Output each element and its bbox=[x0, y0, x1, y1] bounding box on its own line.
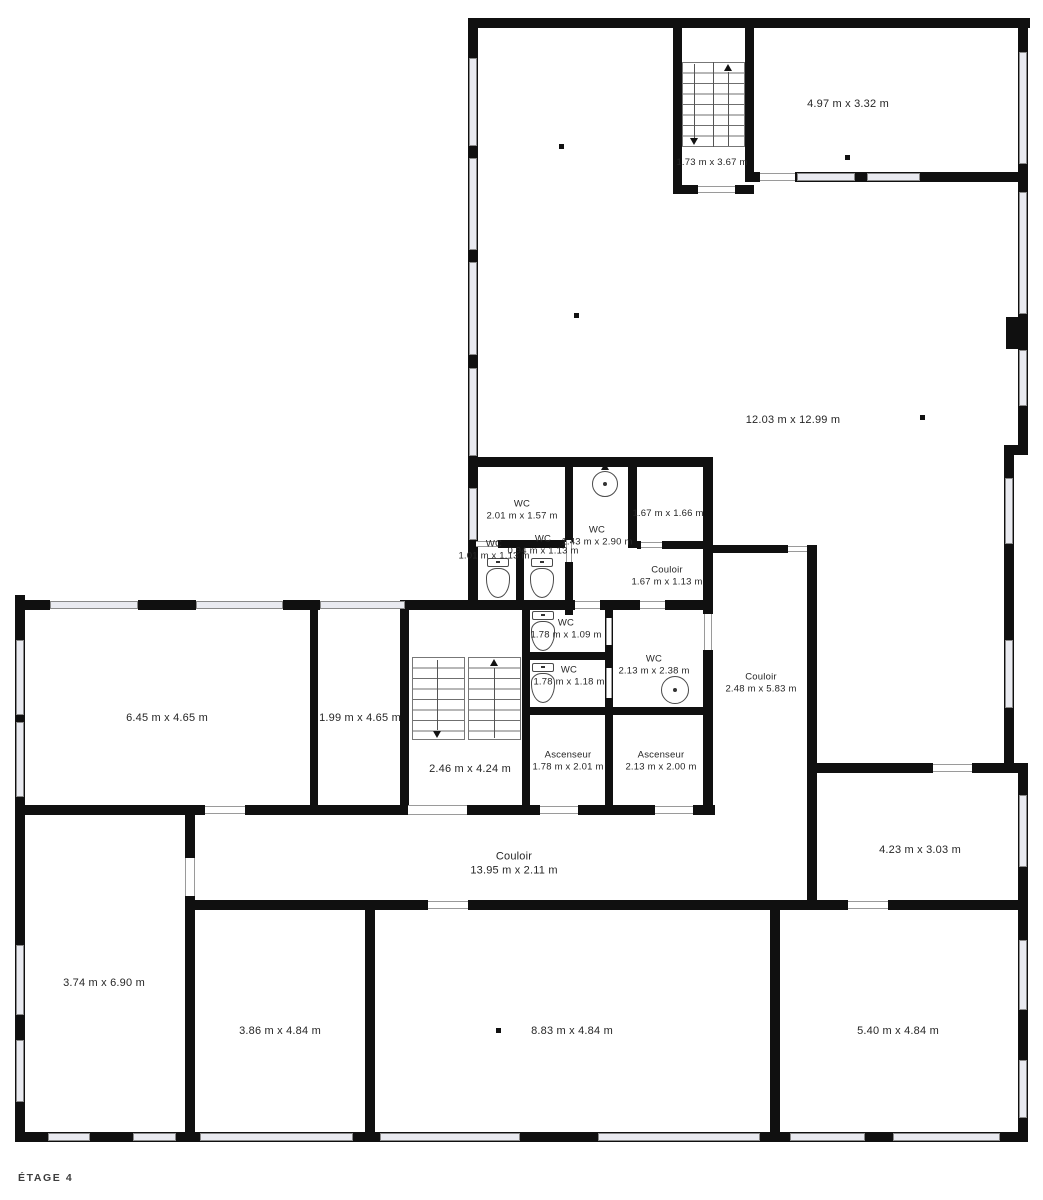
window bbox=[380, 1133, 520, 1141]
wall bbox=[770, 910, 780, 1142]
wall bbox=[703, 650, 713, 813]
wc-1-18: WC1.78 m x 1.18 m bbox=[533, 665, 604, 690]
room-3-86-dimensions: 3.86 m x 4.84 m bbox=[239, 1024, 321, 1038]
window bbox=[16, 640, 24, 715]
wc-2-13: WC2.13 m x 2.38 m bbox=[618, 654, 689, 679]
ascenseur-2-dimensions: 2.13 m x 2.00 m bbox=[625, 762, 696, 774]
room-1-67x1-66-dimensions: 1.67 m x 1.66 m bbox=[632, 508, 703, 520]
toilet-bowl bbox=[486, 568, 510, 598]
marker-dot bbox=[920, 415, 925, 420]
stairs-top: 1.73 m x 3.67 m bbox=[676, 157, 747, 169]
room-4-23-dimensions: 4.23 m x 3.03 m bbox=[879, 843, 961, 857]
toilet-icon bbox=[486, 558, 512, 600]
stairs-middle bbox=[412, 657, 465, 740]
sink-icon bbox=[661, 676, 689, 704]
couloir-1-67: Couloir1.67 m x 1.13 m bbox=[631, 565, 702, 590]
door-opening bbox=[788, 546, 807, 552]
wall bbox=[245, 805, 408, 815]
window bbox=[790, 1133, 865, 1141]
wall bbox=[310, 600, 318, 813]
marker-dot bbox=[496, 1028, 501, 1033]
wall bbox=[468, 900, 848, 910]
wc-2-13-dimensions: 2.13 m x 2.38 m bbox=[618, 666, 689, 678]
window bbox=[1019, 350, 1027, 406]
stairs-run-line bbox=[494, 668, 495, 738]
stairs-mid-dimensions: 2.46 m x 4.24 m bbox=[429, 762, 511, 776]
window bbox=[1005, 478, 1013, 544]
door-opening bbox=[575, 601, 600, 609]
door-opening bbox=[655, 806, 693, 814]
window bbox=[469, 58, 477, 146]
wall bbox=[467, 805, 540, 815]
door-opening bbox=[428, 901, 468, 909]
stairs-run-line bbox=[437, 660, 438, 730]
door-opening bbox=[933, 764, 972, 772]
couloir-2-48: Couloir2.48 m x 5.83 m bbox=[725, 672, 796, 697]
window bbox=[1019, 940, 1027, 1010]
ascenseur-1: Ascenseur1.78 m x 2.01 m bbox=[532, 750, 603, 775]
stairs-top-dimensions: 1.73 m x 3.67 m bbox=[676, 157, 747, 169]
toilet-tank bbox=[531, 558, 553, 567]
door-opening bbox=[540, 806, 578, 814]
wc-1-09-dimensions: 1.78 m x 1.09 m bbox=[530, 630, 601, 642]
ascenseur-1-dimensions: 1.78 m x 2.01 m bbox=[532, 762, 603, 774]
couloir-13-95-dimensions: 13.95 m x 2.11 m bbox=[470, 864, 557, 878]
wall bbox=[613, 707, 713, 715]
wall bbox=[185, 900, 428, 910]
room-12-03: 12.03 m x 12.99 m bbox=[746, 413, 841, 427]
door-opening bbox=[185, 858, 195, 896]
door-opening bbox=[641, 542, 662, 548]
window bbox=[16, 945, 24, 1015]
window bbox=[469, 488, 477, 540]
couloir-13-95-name: Couloir bbox=[470, 850, 557, 864]
door-opening bbox=[640, 601, 665, 609]
window bbox=[48, 1133, 90, 1141]
window bbox=[1005, 640, 1013, 708]
sink-arrow-up-icon bbox=[601, 463, 609, 470]
wall bbox=[807, 545, 817, 910]
room-4-23: 4.23 m x 3.03 m bbox=[879, 843, 961, 857]
stairs-arrow-down-icon bbox=[690, 138, 698, 145]
wall bbox=[578, 805, 655, 815]
door-opening bbox=[408, 805, 467, 815]
window bbox=[893, 1133, 1000, 1141]
wall bbox=[662, 541, 703, 549]
window bbox=[1019, 795, 1027, 867]
window bbox=[867, 173, 920, 181]
wc-2-01-dimensions: 2.01 m x 1.57 m bbox=[486, 511, 557, 523]
wall bbox=[530, 707, 613, 715]
stairs-arrow-down-icon bbox=[433, 731, 441, 738]
wc-2-13-name: WC bbox=[618, 654, 689, 666]
window bbox=[50, 601, 138, 609]
wall bbox=[888, 900, 1028, 910]
window bbox=[598, 1133, 760, 1141]
marker-dot bbox=[845, 155, 850, 160]
room-8-83-dimensions: 8.83 m x 4.84 m bbox=[531, 1024, 613, 1038]
stairs-run-line bbox=[728, 72, 729, 146]
room-12-03-dimensions: 12.03 m x 12.99 m bbox=[746, 413, 841, 427]
room-3-74: 3.74 m x 6.90 m bbox=[63, 976, 145, 990]
wall bbox=[365, 910, 375, 1142]
wall bbox=[693, 805, 715, 815]
window bbox=[797, 173, 855, 181]
couloir-13-95: Couloir13.95 m x 2.11 m bbox=[470, 850, 557, 879]
wall bbox=[817, 763, 933, 773]
stairs-divider bbox=[713, 62, 714, 147]
door-opening bbox=[760, 173, 795, 181]
wc-2-01-name: WC bbox=[486, 499, 557, 511]
wall bbox=[530, 652, 605, 660]
door-opening bbox=[606, 668, 612, 698]
wall bbox=[665, 600, 713, 610]
wc-2-01: WC2.01 m x 1.57 m bbox=[486, 499, 557, 524]
window bbox=[133, 1133, 176, 1141]
wc-1-18-name: WC bbox=[533, 665, 604, 677]
stairs-arrow-up-icon bbox=[724, 64, 732, 71]
window bbox=[320, 601, 405, 609]
wall bbox=[468, 457, 713, 467]
room-6-45: 6.45 m x 4.65 m bbox=[126, 711, 208, 725]
room-4-97: 4.97 m x 3.32 m bbox=[807, 97, 889, 111]
wall bbox=[713, 545, 788, 553]
window bbox=[200, 1133, 353, 1141]
room-1-67x1-66: 1.67 m x 1.66 m bbox=[632, 508, 703, 520]
wc-0-94: WC0.94 m x 1.13 m bbox=[507, 534, 578, 559]
window bbox=[469, 262, 477, 355]
floor-plan: ÉTAGE 4 4.97 m x 3.32 m1.73 m x 3.67 m12… bbox=[0, 0, 1043, 1200]
wall bbox=[405, 600, 477, 610]
wall bbox=[185, 810, 195, 858]
ascenseur-2-name: Ascenseur bbox=[625, 750, 696, 762]
marker-dot bbox=[574, 313, 579, 318]
door-opening bbox=[848, 901, 888, 909]
room-8-83: 8.83 m x 4.84 m bbox=[531, 1024, 613, 1038]
wc-0-94-name: WC bbox=[507, 534, 578, 546]
couloir-2-48-name: Couloir bbox=[725, 672, 796, 684]
wall bbox=[735, 185, 754, 194]
wall bbox=[1006, 317, 1018, 349]
wc-0-94-dimensions: 0.94 m x 1.13 m bbox=[507, 546, 578, 558]
room-1-99: 1.99 m x 4.65 m bbox=[319, 711, 401, 725]
door-opening bbox=[704, 614, 712, 650]
wall bbox=[185, 896, 195, 1142]
wc-1-09-name: WC bbox=[530, 618, 601, 630]
window bbox=[469, 158, 477, 250]
floor-title: ÉTAGE 4 bbox=[18, 1172, 73, 1184]
stairs-run-line bbox=[694, 64, 695, 138]
window bbox=[1019, 192, 1027, 314]
door-opening bbox=[698, 186, 735, 193]
wall bbox=[400, 600, 409, 813]
wall bbox=[703, 457, 713, 614]
window bbox=[16, 722, 24, 797]
room-6-45-dimensions: 6.45 m x 4.65 m bbox=[126, 711, 208, 725]
wall bbox=[15, 805, 205, 815]
sink-icon bbox=[592, 471, 618, 497]
toilet-bowl bbox=[530, 568, 554, 598]
couloir-1-67-dimensions: 1.67 m x 1.13 m bbox=[631, 577, 702, 589]
stairs-mid: 2.46 m x 4.24 m bbox=[429, 762, 511, 776]
wc-1-09: WC1.78 m x 1.09 m bbox=[530, 618, 601, 643]
room-5-40: 5.40 m x 4.84 m bbox=[857, 1024, 939, 1038]
window bbox=[469, 368, 477, 456]
ascenseur-1-name: Ascenseur bbox=[532, 750, 603, 762]
stairs-arrow-up-icon bbox=[490, 659, 498, 666]
couloir-1-67-name: Couloir bbox=[631, 565, 702, 577]
room-4-97-dimensions: 4.97 m x 3.32 m bbox=[807, 97, 889, 111]
room-3-86: 3.86 m x 4.84 m bbox=[239, 1024, 321, 1038]
window bbox=[196, 601, 283, 609]
room-3-74-dimensions: 3.74 m x 6.90 m bbox=[63, 976, 145, 990]
wall bbox=[522, 600, 530, 815]
wall bbox=[138, 600, 196, 610]
wc-1-18-dimensions: 1.78 m x 1.18 m bbox=[533, 677, 604, 689]
door-opening bbox=[205, 806, 245, 814]
ascenseur-2: Ascenseur2.13 m x 2.00 m bbox=[625, 750, 696, 775]
marker-dot bbox=[559, 144, 564, 149]
room-1-99-dimensions: 1.99 m x 4.65 m bbox=[319, 711, 401, 725]
couloir-2-48-dimensions: 2.48 m x 5.83 m bbox=[725, 684, 796, 696]
wall bbox=[673, 185, 698, 194]
door-opening bbox=[606, 618, 612, 645]
window bbox=[1019, 52, 1027, 164]
toilet-icon bbox=[530, 558, 556, 600]
window bbox=[16, 1040, 24, 1102]
room-5-40-dimensions: 5.40 m x 4.84 m bbox=[857, 1024, 939, 1038]
window bbox=[1019, 1060, 1027, 1118]
